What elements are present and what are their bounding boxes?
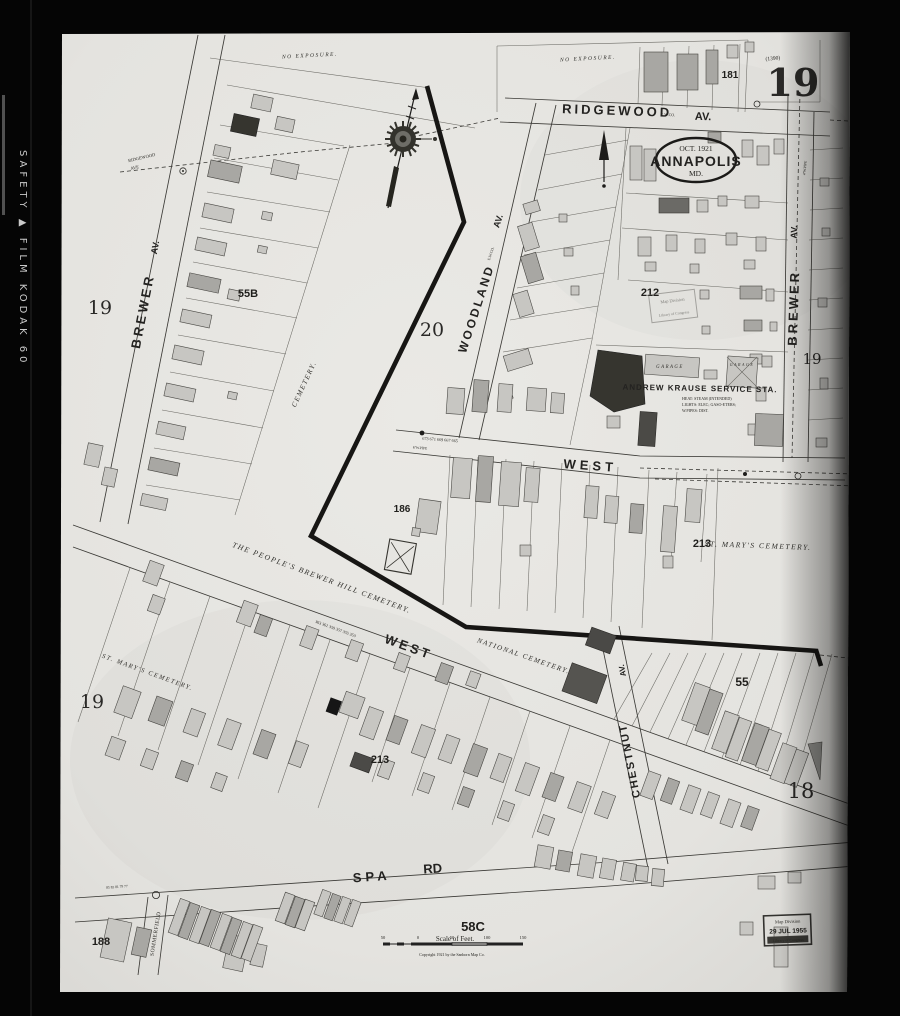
block-number-55: 55	[735, 675, 749, 689]
film-seam	[30, 0, 32, 1016]
scale-copyright: Copyright 1921 by the Sanborn Map Co.	[419, 952, 484, 957]
scale-tick-4: 150	[520, 935, 528, 940]
street-ridgewood-av: AV.	[695, 111, 712, 124]
street-spa: SPA	[352, 868, 391, 886]
sheet-number-mid: 19	[80, 691, 104, 713]
sheet-number-20: 20	[420, 319, 444, 341]
scan-shadow-right	[780, 30, 850, 995]
scale-tick-0: 50	[381, 935, 386, 940]
block-number-58c: 58C	[461, 919, 485, 934]
title-city: ANNAPOLIS	[650, 153, 741, 169]
scale-label: Scale of Feet.	[436, 935, 475, 943]
title-state: MD.	[689, 169, 703, 178]
vacant-x-building	[384, 539, 416, 574]
sheet-number-left: 19	[88, 297, 112, 319]
title-date: OCT. 1921	[679, 144, 712, 153]
block-number-55b: 55B	[238, 288, 258, 300]
street-spa-rd: RD	[423, 860, 443, 876]
scale-tick-3: 100	[484, 935, 492, 940]
block-number-213-upper: 213	[693, 538, 711, 550]
label-garage-2: GARAGE	[730, 362, 755, 367]
pipe-note-ridgewood: E.W.CO.	[661, 112, 676, 118]
block-number-186: 186	[394, 504, 411, 515]
film-edge-glint	[2, 95, 5, 215]
plate-note: (1390)	[765, 54, 780, 62]
label-krause-note3: W.PIPES: DIST.	[682, 408, 709, 413]
label-krause-note2: LIGHTS: ELEC; GASO-ETERS;	[682, 402, 736, 407]
sanborn-map-sheet: SAFETY ▲ FILM KODAK 60	[0, 0, 900, 1016]
block-number-213-lower: 213	[371, 754, 389, 766]
film-scan-frame: SAFETY ▲ FILM KODAK 60	[0, 0, 900, 1016]
block-number-212: 212	[641, 287, 659, 299]
block-number-188: 188	[92, 936, 110, 948]
block-number-181: 181	[722, 70, 739, 81]
label-garage-1: GARAGE	[656, 365, 684, 370]
film-edge-text: SAFETY ▲ FILM KODAK 60	[17, 150, 28, 367]
scale-tick-2: 50	[450, 935, 455, 940]
label-krause-note1: HEAT: STEAM (INTENDED)	[682, 396, 732, 401]
